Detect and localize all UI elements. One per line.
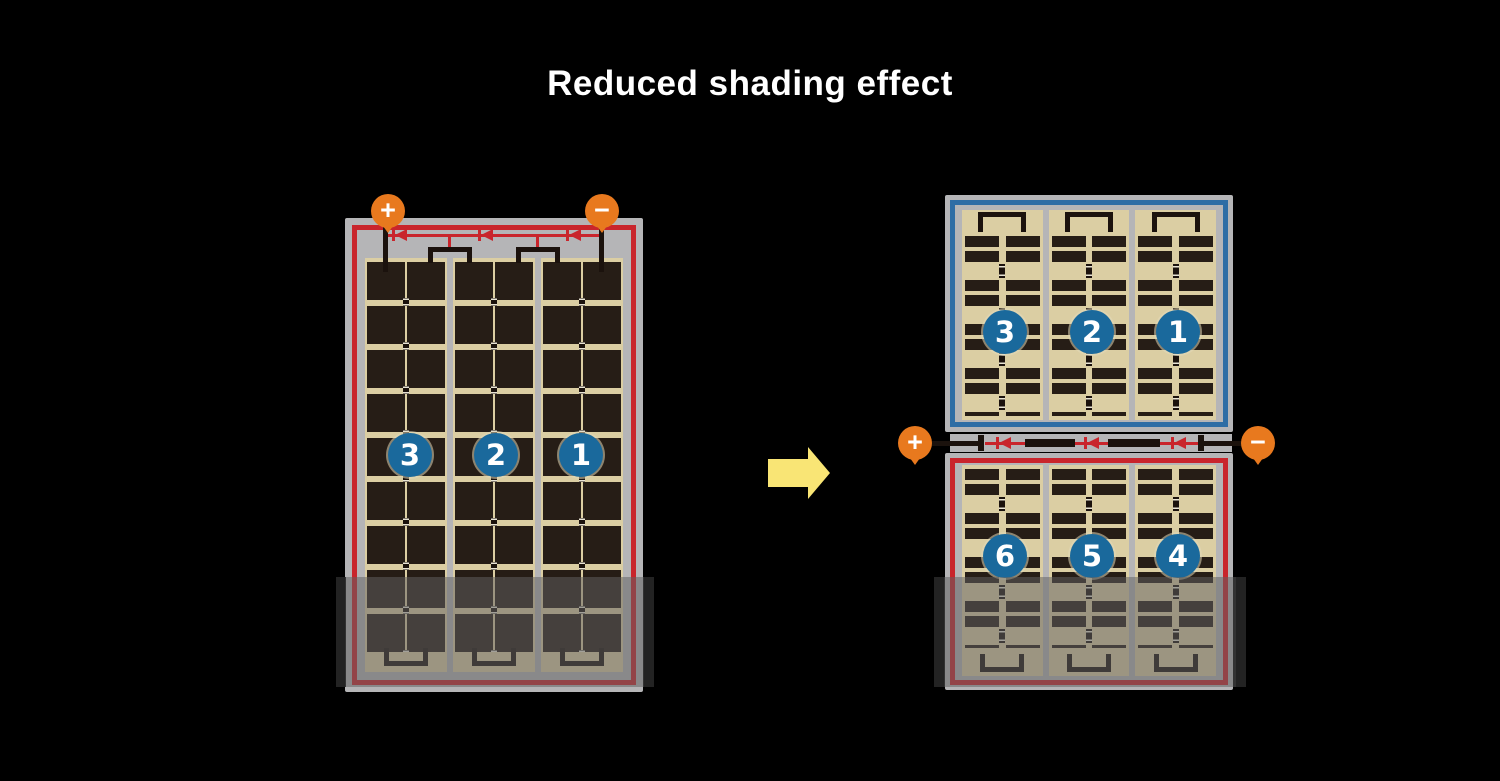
positive-lead-wire [928,441,980,446]
negative-terminal: − [1241,426,1275,460]
positive-terminal: + [371,194,405,228]
cell-group-badge: 1 [559,433,603,477]
cell-group-badge: 3 [388,433,432,477]
cell-group-badge: 4 [1156,534,1200,578]
positive-terminal: + [898,426,932,460]
busbar-bridge [428,247,472,263]
busbar-bridge [1152,212,1200,232]
plus-icon: + [907,429,923,456]
cell-group-badge: 2 [1070,310,1114,354]
bus-tap-segment [1108,439,1160,447]
diode-icon [477,229,493,241]
plus-icon: + [380,197,396,224]
transform-arrow-icon [808,447,830,499]
negative-lead-wire [1204,441,1244,446]
diode-icon [565,229,581,241]
diode-icon [391,229,407,241]
diode-icon [995,437,1011,449]
shading-overlay [934,577,1246,687]
junction-diode-bus [950,434,1232,452]
busbar-bridge [516,247,560,263]
minus-icon: − [1250,429,1266,456]
cell-group-badge: 3 [983,310,1027,354]
transform-arrow-icon [768,459,808,487]
cell-group-badge: 6 [983,534,1027,578]
busbar-bridge [978,212,1026,232]
busbar-bridge [1065,212,1113,232]
diode-icon [1083,437,1099,449]
cell-group-badge: 1 [1156,310,1200,354]
diagram-title: Reduced shading effect [0,64,1500,104]
negative-terminal: − [585,194,619,228]
diode-icon [1170,437,1186,449]
bus-tap-segment [1025,439,1075,447]
minus-icon: − [594,197,610,224]
cell-group-badge: 5 [1070,534,1114,578]
diagram-canvas: Reduced shading effect [0,0,1500,781]
shading-overlay [336,577,654,687]
cell-group-badge: 2 [474,433,518,477]
